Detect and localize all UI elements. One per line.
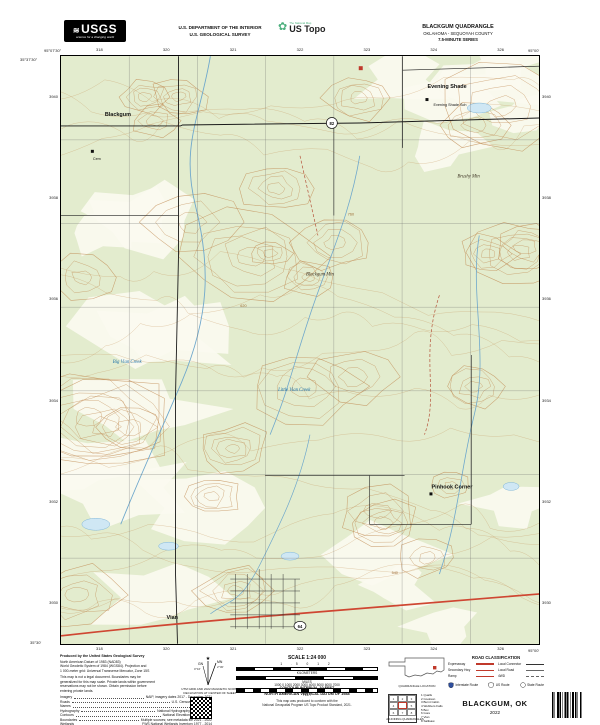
pond bbox=[281, 552, 299, 560]
collar-ticks-left: 394039383936393439323930 bbox=[44, 55, 58, 645]
corner-coordinate: 95°00' bbox=[528, 648, 539, 653]
road-class-col2: Local Connector Local Road 4WD bbox=[498, 662, 544, 680]
adj-cell: 1 bbox=[389, 695, 398, 702]
contour-interval-note: CONTOUR INTERVAL 10 FEET NORTH AMERICAN … bbox=[232, 686, 382, 697]
usgs-topo-sheet: ≋USGS science for a changing world U.S. … bbox=[0, 0, 600, 725]
collar-ticks-top: 318320321322323324326 bbox=[60, 48, 540, 52]
legend-label: Secondary Hwy bbox=[448, 668, 470, 672]
adj-cell: 7 bbox=[398, 709, 407, 716]
state-route-number: 82 bbox=[330, 121, 335, 126]
tick-label: 3934 bbox=[542, 399, 558, 403]
state-route-circle-icon bbox=[520, 682, 526, 688]
interstate-shield-icon bbox=[448, 682, 454, 688]
locator-caption: QUADRANGLE LOCATION bbox=[380, 684, 454, 688]
leader-dots bbox=[81, 710, 155, 712]
collar-ticks-right: 394039383936393439323930 bbox=[542, 55, 558, 645]
legend-label: Ramp bbox=[448, 674, 457, 678]
tick-label: 3940 bbox=[49, 95, 58, 99]
road-class-col1: Expressway Secondary Hwy Ramp bbox=[448, 662, 494, 680]
adj-cell: 2 bbox=[398, 695, 407, 702]
tick-label: 3938 bbox=[542, 196, 558, 200]
road-class-title: ROAD CLASSIFICATION bbox=[448, 655, 544, 660]
ustopo-brand: US Topo bbox=[289, 25, 325, 34]
pond bbox=[467, 103, 491, 113]
sheet-name: BLACKGUM, OK bbox=[440, 699, 550, 708]
local-connector-swatch bbox=[526, 664, 544, 665]
dept-line2: U.S. GEOLOGICAL SURVEY bbox=[140, 31, 300, 38]
tick-label: 322 bbox=[297, 647, 304, 651]
map-label: Big Vian Creek bbox=[113, 360, 143, 365]
quad-series: 7.5-MINUTE SERIES bbox=[378, 37, 538, 43]
ramp-swatch bbox=[476, 676, 494, 677]
pond bbox=[82, 518, 110, 530]
pond bbox=[503, 482, 519, 490]
ustopo-flower-icon: ✿ bbox=[278, 22, 287, 33]
dept-line1: U.S. DEPARTMENT OF THE INTERIOR bbox=[140, 24, 300, 31]
legend-label: US Route bbox=[496, 683, 510, 687]
expressway-swatch bbox=[476, 663, 494, 665]
building-marker-red bbox=[359, 66, 363, 70]
map-label: Little Vian Creek bbox=[277, 388, 311, 393]
map-label: 620 bbox=[240, 304, 246, 308]
adj-cell: 6 bbox=[389, 709, 398, 716]
sheet-year: 2022 bbox=[440, 710, 550, 715]
usgs-tagline: science for a changing world bbox=[76, 36, 114, 39]
leader-dots bbox=[73, 706, 193, 708]
corner-coordinate: 95°07'30" bbox=[44, 48, 61, 53]
adjoining-caption: ADJOINING QUADRANGLES bbox=[382, 717, 428, 721]
legend-row: Local Road bbox=[498, 668, 544, 672]
tick-label: 323 bbox=[364, 647, 371, 651]
scale-title: SCALE 1:24 000 bbox=[232, 655, 382, 661]
tick-label: 321 bbox=[230, 48, 237, 52]
gn-label: GN bbox=[198, 662, 204, 666]
tick-label: 3932 bbox=[49, 500, 58, 504]
legend-row: Local Connector bbox=[498, 662, 544, 666]
adj-cell-center bbox=[398, 702, 407, 709]
legend-row: Secondary Hwy bbox=[448, 668, 494, 672]
tick-label: 3936 bbox=[49, 297, 58, 301]
tick-label: 326 bbox=[497, 647, 504, 651]
road-classification-legend: ROAD CLASSIFICATION Expressway Secondary… bbox=[448, 655, 544, 688]
legend-label: 4WD bbox=[498, 674, 505, 678]
legend-row: Expressway bbox=[448, 662, 494, 666]
oklahoma-outline bbox=[388, 655, 446, 685]
usgs-wordmark: ≋USGS bbox=[73, 23, 117, 35]
map-label: 540 bbox=[392, 571, 398, 575]
tick-label: 318 bbox=[96, 48, 103, 52]
tick-label: 3930 bbox=[542, 601, 558, 605]
tick-label: 3936 bbox=[542, 297, 558, 301]
ustopo-logo: ✿ The National Map US Topo bbox=[278, 22, 326, 34]
tick-label: 320 bbox=[163, 48, 170, 52]
map-label: Blackgum Mtn bbox=[306, 272, 335, 277]
interstate-route-item: Interstate Route bbox=[448, 682, 478, 688]
collar-ticks-bottom: 318320321322323324326 bbox=[60, 647, 540, 651]
qr-code bbox=[190, 697, 212, 719]
legend-label: State Route bbox=[527, 683, 544, 687]
corner-coordinate: 95°00' bbox=[528, 48, 539, 53]
map-label: Cem bbox=[93, 157, 101, 161]
legend-row: 4WD bbox=[498, 674, 544, 678]
legend-label: Local Connector bbox=[498, 662, 521, 666]
state-route-item: State Route bbox=[520, 682, 544, 688]
tick-label: 324 bbox=[430, 647, 437, 651]
tick-label: 323 bbox=[364, 48, 371, 52]
map-label: Blackgum bbox=[105, 112, 131, 118]
school-marker bbox=[425, 98, 428, 101]
adj-cell: 3 bbox=[407, 695, 416, 702]
map-label: Pinhook Corner bbox=[431, 484, 473, 490]
declination-svg: ★ GN MN 0°16' 2°30' bbox=[186, 654, 230, 688]
usgs-logo: ≋USGS science for a changing world bbox=[64, 20, 126, 42]
tick-label: 3938 bbox=[49, 196, 58, 200]
tick-label: 3940 bbox=[542, 95, 558, 99]
tick-label: 3930 bbox=[49, 601, 58, 605]
tick-label: 320 bbox=[163, 647, 170, 651]
legend-label: Interstate Route bbox=[456, 683, 479, 687]
leader-dots bbox=[76, 715, 161, 717]
terrain-svg: 82 64 BlackgumEvening ShadeEvening Shade… bbox=[61, 56, 539, 644]
tick-label: 322 bbox=[297, 48, 304, 52]
gn-angle: 0°16' bbox=[194, 667, 201, 671]
department-heading: U.S. DEPARTMENT OF THE INTERIOR U.S. GEO… bbox=[140, 24, 300, 39]
building-marker bbox=[429, 492, 432, 495]
tick-label: 321 bbox=[230, 647, 237, 651]
cemetery-marker bbox=[91, 150, 94, 153]
usgs-wave-icon: ≋ bbox=[73, 26, 80, 35]
tick-label: 318 bbox=[96, 647, 103, 651]
leader-dots bbox=[74, 697, 143, 699]
fourwd-swatch bbox=[526, 676, 544, 677]
map-label: 760 bbox=[348, 213, 354, 217]
true-north-star-icon: ★ bbox=[206, 656, 211, 662]
local-road-swatch bbox=[526, 670, 544, 671]
corner-coordinate: 35°30' bbox=[30, 640, 41, 645]
vertical-datum: NORTH AMERICAN VERTICAL DATUM OF 1988 bbox=[232, 692, 382, 698]
adj-cell: 4 bbox=[389, 702, 398, 709]
corner-coordinate: 35°37'30" bbox=[20, 57, 37, 62]
adj-cell: 5 bbox=[407, 702, 416, 709]
secondary-hwy-swatch bbox=[476, 670, 494, 671]
tick-label: 324 bbox=[430, 48, 437, 52]
sheet-title-block: BLACKGUM, OK 2022 bbox=[440, 699, 550, 715]
quad-location-marker bbox=[433, 666, 436, 669]
map-label: Evening Shade bbox=[427, 84, 466, 90]
topo-map: 82 64 BlackgumEvening ShadeEvening Shade… bbox=[60, 55, 540, 645]
map-label: Evening Shade Sch bbox=[433, 103, 466, 107]
conformance-note: This map was produced to conform with th… bbox=[222, 699, 392, 708]
tick-label: 326 bbox=[497, 48, 504, 52]
us-route-item: US Route bbox=[488, 682, 509, 688]
quadrangle-title-block: BLACKGUM QUADRANGLE OKLAHOMA - SEQUOYAH … bbox=[378, 23, 538, 44]
legend-label: Local Road bbox=[498, 668, 514, 672]
leader-dots bbox=[72, 701, 170, 703]
adj-cell: 8 bbox=[407, 709, 416, 716]
tick-label: 3934 bbox=[49, 399, 58, 403]
legend-label: Expressway bbox=[448, 662, 465, 666]
legend-row: Ramp bbox=[448, 674, 494, 678]
declination-diagram: ★ GN MN 0°16' 2°30' bbox=[186, 654, 230, 688]
state-locator bbox=[388, 655, 446, 685]
map-label: Brushy Mtn bbox=[457, 175, 480, 180]
tick-label: 3932 bbox=[542, 500, 558, 504]
map-label: Vian bbox=[167, 615, 178, 621]
conform-line2: National Geospatial Program US Topo Prod… bbox=[222, 703, 392, 707]
quad-title: BLACKGUM QUADRANGLE bbox=[378, 23, 538, 31]
leader-dots bbox=[79, 719, 139, 721]
mn-label: MN bbox=[217, 660, 223, 664]
mn-angle: 2°30' bbox=[217, 665, 224, 669]
us-route-shield-icon bbox=[488, 682, 494, 688]
us-route-number: 64 bbox=[298, 624, 303, 629]
barcode bbox=[552, 692, 582, 718]
